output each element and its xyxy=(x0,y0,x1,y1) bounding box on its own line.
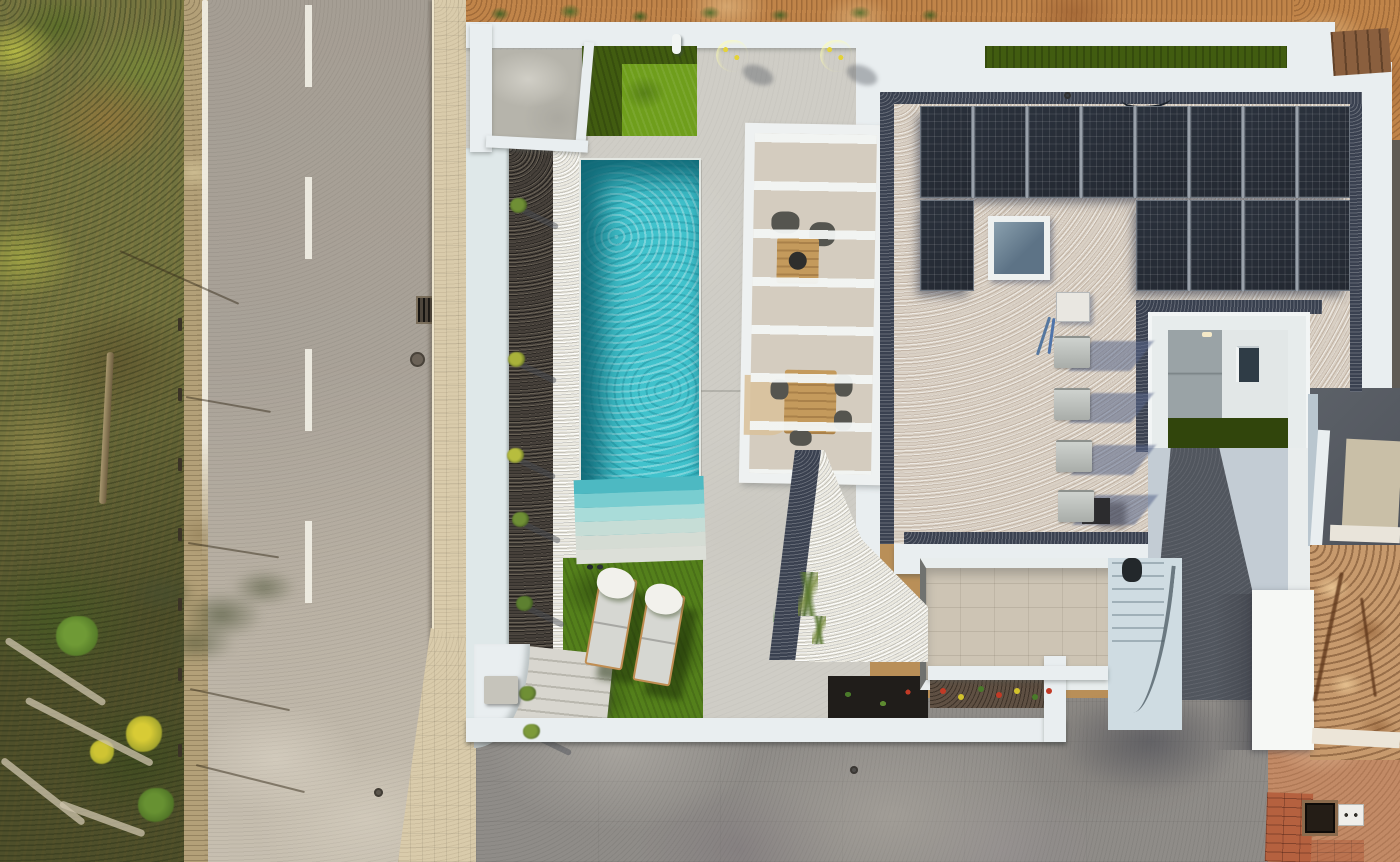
garage-white-wall xyxy=(1252,590,1314,750)
solar-panel xyxy=(1136,106,1188,198)
solar-panel xyxy=(920,106,972,198)
solar-panel xyxy=(920,200,974,291)
asphalt-road xyxy=(208,0,434,862)
ac-unit xyxy=(1054,388,1090,420)
ac-unit xyxy=(1058,490,1094,522)
potted-plant-dark xyxy=(1122,558,1142,582)
pergola xyxy=(739,123,887,485)
flower xyxy=(1014,688,1020,694)
dark-planting-bed xyxy=(828,676,928,722)
garage-wall-shadow xyxy=(1214,594,1254,750)
roof-dark-gravel-right xyxy=(1350,104,1362,392)
flower xyxy=(940,688,946,694)
solar-panel xyxy=(1190,200,1242,291)
aerial-photo-scene xyxy=(0,0,1400,862)
fence-post xyxy=(178,318,182,331)
courtyard-window xyxy=(1236,346,1259,382)
solar-panel xyxy=(1082,106,1134,198)
pool-steps xyxy=(574,476,707,566)
roof-drain-dot xyxy=(1064,92,1071,99)
electrical-box xyxy=(1056,292,1090,322)
solar-panel-row xyxy=(1136,200,1350,291)
solar-panel xyxy=(1298,200,1350,291)
flower xyxy=(1046,688,1052,694)
tree-shadow xyxy=(128,560,298,670)
roof-dark-gravel-bottom xyxy=(904,532,1152,544)
grass-tuft xyxy=(812,616,826,644)
entry-staircase xyxy=(1108,558,1182,730)
garden-bottom-wall xyxy=(466,718,1066,742)
grass-tuft xyxy=(798,572,818,616)
lawn-top-bright xyxy=(622,64,697,136)
wall-filler xyxy=(856,44,988,64)
flower xyxy=(996,692,1002,698)
flower xyxy=(978,686,984,692)
terrace-front-wall xyxy=(928,666,1108,680)
solar-panel xyxy=(1244,106,1296,198)
solar-panel xyxy=(1190,106,1242,198)
flower xyxy=(958,694,964,700)
concrete-pad-right xyxy=(1342,439,1400,534)
utility-meter-box xyxy=(1338,804,1364,826)
pergola-slats xyxy=(749,133,877,475)
potted-plant xyxy=(716,40,748,72)
wall-green-strip xyxy=(985,46,1287,68)
fence-post xyxy=(178,458,182,471)
neighbor-gray-strip xyxy=(1392,140,1400,400)
wood-plank-stack xyxy=(1331,28,1392,76)
solar-panel xyxy=(1244,200,1296,291)
potted-plant xyxy=(820,40,852,72)
floor-hatch xyxy=(1302,800,1338,836)
solar-panel xyxy=(1028,106,1080,198)
entry-side-wall xyxy=(470,24,492,152)
concrete-slab-bench xyxy=(484,676,518,704)
solar-panel-row xyxy=(920,200,974,291)
fence-post xyxy=(178,528,182,541)
entry-concrete-pad xyxy=(488,50,588,148)
roof-parapet-right xyxy=(1362,62,1392,392)
courtyard-grass xyxy=(1168,418,1288,448)
flower xyxy=(1032,694,1038,700)
solar-panel xyxy=(974,106,1026,198)
fence-post xyxy=(178,388,182,401)
solar-panel xyxy=(1136,200,1188,291)
driveway-drain-dot xyxy=(850,766,858,774)
fence-post xyxy=(178,598,182,611)
fence-post xyxy=(178,668,182,681)
fence-post xyxy=(178,744,182,757)
ac-unit xyxy=(1054,336,1090,368)
manhole-cover xyxy=(410,352,425,367)
road-edge-line xyxy=(202,0,208,560)
small-road-dot xyxy=(374,788,383,797)
door-light xyxy=(1202,332,1212,337)
ac-unit xyxy=(1056,440,1092,472)
solar-panel-row xyxy=(920,106,1350,198)
solar-panel xyxy=(1298,106,1350,198)
outdoor-shower xyxy=(672,34,681,54)
skylight xyxy=(988,216,1050,280)
roof-dark-gravel-left xyxy=(880,92,894,544)
flower-bed xyxy=(930,676,1058,708)
white-board xyxy=(1330,525,1400,543)
road-center-dashed-line xyxy=(305,5,312,653)
courtyard-wall-face xyxy=(1168,330,1222,418)
